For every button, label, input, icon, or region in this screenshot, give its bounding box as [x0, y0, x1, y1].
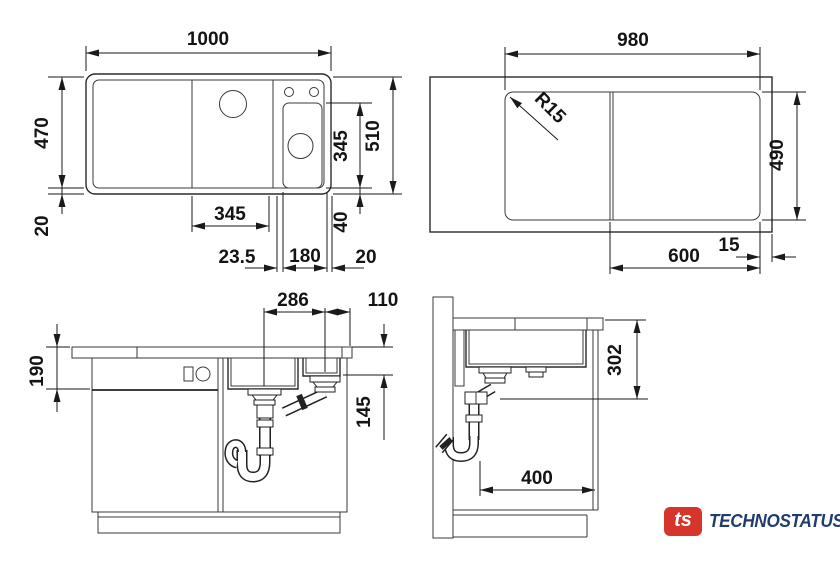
svg-text:40: 40: [331, 211, 352, 232]
dim-depth: 470: [32, 77, 84, 188]
drain-tee: [257, 405, 273, 418]
back-batten: [455, 330, 464, 386]
main-drain-flange: [248, 389, 281, 395]
svg-text:286: 286: [277, 290, 309, 311]
technical-drawing: 1000 470 20 510 345: [0, 0, 840, 572]
logo-badge-icon: ts: [664, 507, 702, 536]
small-drain-flange: [310, 376, 340, 382]
svg-text:23.5: 23.5: [219, 247, 256, 268]
svg-text:345: 345: [214, 204, 246, 225]
svg-text:600: 600: [668, 246, 700, 267]
svg-text:180: 180: [289, 246, 321, 267]
countertop-side: [453, 318, 603, 330]
svg-text:400: 400: [521, 468, 553, 489]
front-section-view: 286 110 190 145: [27, 290, 398, 533]
svg-text:20: 20: [355, 247, 376, 268]
logo-brand-name: TECHNOSTATUS: [709, 511, 840, 532]
dim-bowl-width: 345: [192, 196, 269, 232]
bowl-side-section: [466, 330, 586, 367]
plinth: [98, 512, 340, 533]
svg-text:110: 110: [368, 290, 399, 311]
svg-text:190: 190: [27, 355, 48, 387]
side-drain-flange: [479, 367, 511, 373]
brand-logo: ts TECHNOSTATUS: [664, 507, 840, 536]
dim-bowl-depth: 190: [27, 324, 90, 412]
dim-rear-rim: 40: [331, 188, 360, 233]
dim-drain-to-edge: 110: [325, 290, 398, 346]
svg-text:345: 345: [331, 130, 352, 162]
bowl-side-inner: [469, 330, 583, 364]
side-section-view: 302 400: [433, 297, 648, 538]
technical-drawing-page: 1000 470 20 510 345: [0, 0, 840, 572]
sink-plan-view: 1000 470 20 510 345: [32, 29, 402, 272]
svg-text:1000: 1000: [187, 29, 229, 50]
sink-outline: [86, 74, 331, 194]
dim-edge-distance: 15: [718, 234, 796, 262]
dishwasher-cabinet: [92, 358, 218, 512]
svg-text:490: 490: [767, 139, 788, 171]
svg-text:980: 980: [617, 30, 649, 51]
dim-underside-clearance: 302: [500, 320, 648, 399]
svg-text:20: 20: [32, 215, 53, 236]
dim-overall-width: 1000: [86, 29, 331, 71]
cutout-plan-view: 980 R15 490 600 15: [430, 30, 806, 274]
countertop-band: [72, 347, 352, 358]
svg-text:145: 145: [354, 396, 375, 428]
wall-section: [433, 297, 453, 538]
dim-trap-clearance: 400: [480, 461, 595, 496]
svg-text:302: 302: [605, 344, 626, 376]
svg-text:510: 510: [363, 120, 384, 152]
svg-text:15: 15: [718, 235, 740, 256]
overflow-fitting: [526, 367, 546, 372]
dim-front-rim: 20: [32, 188, 84, 237]
svg-text:470: 470: [32, 117, 53, 149]
